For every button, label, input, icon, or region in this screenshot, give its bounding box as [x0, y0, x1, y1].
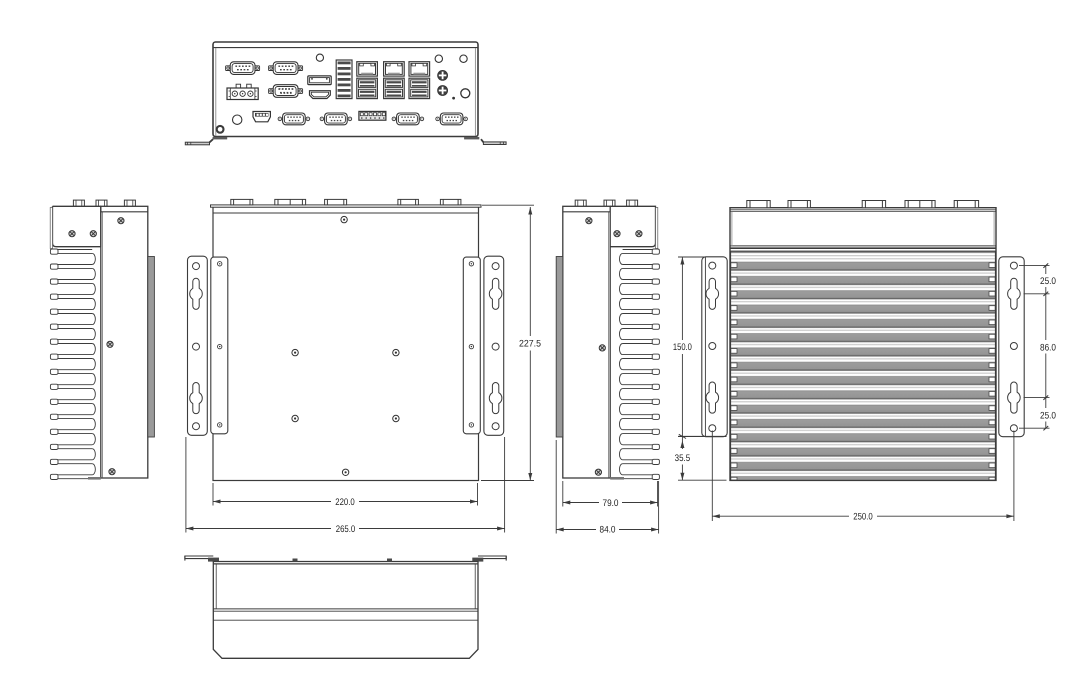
svg-text:86.0: 86.0: [1040, 343, 1056, 354]
svg-text:35.5: 35.5: [675, 453, 691, 464]
svg-text:79.0: 79.0: [603, 498, 619, 509]
svg-text:265.0: 265.0: [336, 524, 356, 535]
svg-text:220.0: 220.0: [335, 497, 355, 508]
svg-text:84.0: 84.0: [600, 525, 616, 536]
svg-text:25.0: 25.0: [1040, 276, 1056, 287]
svg-text:150.0: 150.0: [673, 342, 692, 353]
svg-text:227.5: 227.5: [519, 339, 541, 350]
svg-text:250.0: 250.0: [853, 512, 873, 523]
svg-text:25.0: 25.0: [1040, 411, 1056, 422]
